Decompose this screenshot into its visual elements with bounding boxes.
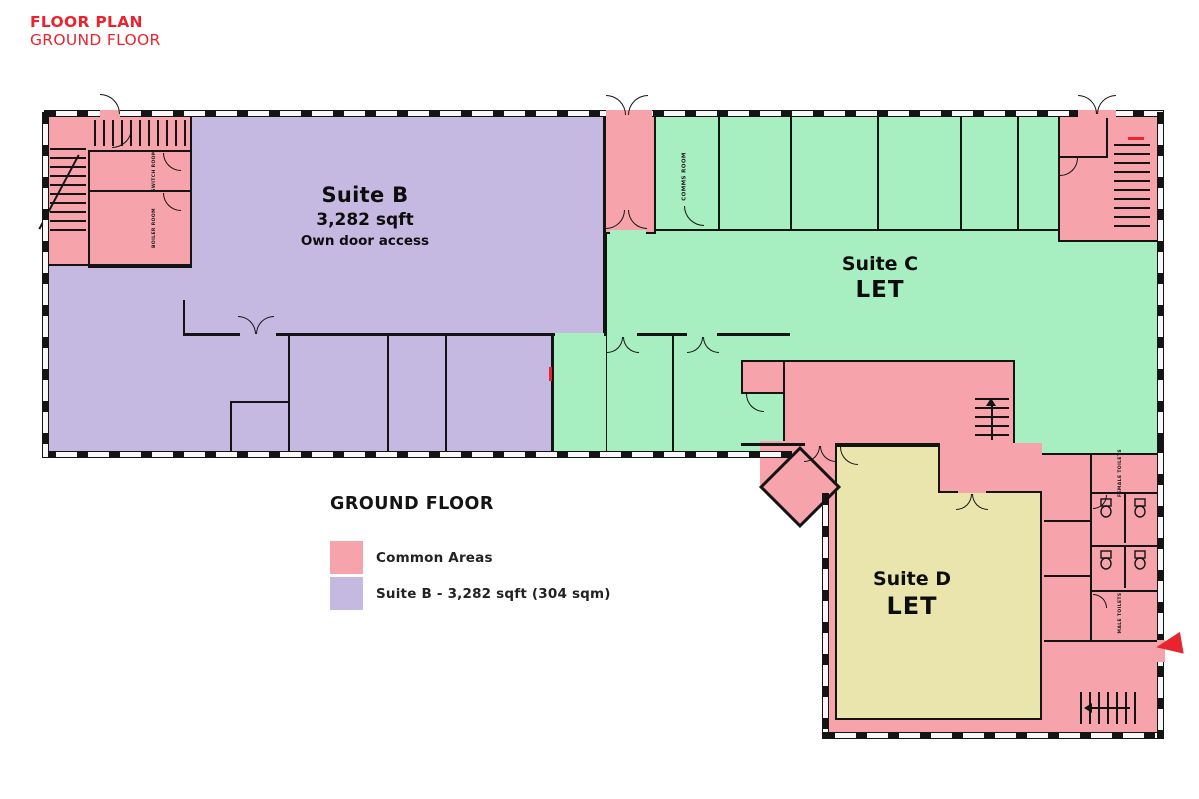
suite-b-swatch — [330, 577, 363, 610]
wall-segment — [1124, 547, 1126, 588]
wall-segment — [672, 336, 674, 454]
stairs-icon — [1114, 144, 1150, 232]
wall-segment — [551, 333, 554, 456]
door-opening — [687, 333, 717, 336]
door-arc-icon — [628, 95, 648, 115]
suite-c-name: Suite C — [795, 253, 965, 275]
window-strip — [1157, 112, 1164, 458]
common-area-core-lobby — [741, 360, 785, 394]
suite-c-label: Suite C LET — [795, 253, 965, 303]
male-toilets-label: MALE TOILETS — [1118, 588, 1134, 638]
door-opening — [607, 333, 637, 336]
suite-d-label: Suite D LET — [827, 568, 997, 620]
wall-segment — [1044, 575, 1090, 577]
door-arc-icon — [606, 95, 626, 115]
wall-segment — [1044, 520, 1090, 522]
window-strip — [44, 110, 1164, 117]
riser-room — [1058, 114, 1108, 158]
page-title: FLOOR PLAN — [30, 13, 161, 31]
wall-segment — [1044, 640, 1162, 642]
toilet-icon — [1132, 550, 1148, 574]
toilet-icon — [1132, 498, 1148, 522]
wall-segment — [183, 300, 185, 335]
wall-segment — [960, 117, 962, 229]
entrance-arrow-icon — [1154, 632, 1183, 658]
page-header: FLOOR PLAN GROUND FLOOR — [30, 13, 161, 49]
stairs-arrow-head — [986, 398, 996, 406]
stairs-icon — [94, 120, 186, 146]
floor-plan-page: { "header": { "line1": "FLOOR PLAN", "li… — [0, 0, 1199, 799]
legend-item-label: Suite B - 3,282 sqft (304 sqm) — [376, 586, 611, 602]
wall-segment — [183, 333, 240, 336]
window-strip — [42, 112, 49, 458]
suite-b-note: Own door access — [230, 233, 500, 249]
switch-room-label: SWITCH ROOM — [152, 149, 168, 193]
wall-segment — [1090, 455, 1092, 640]
legend-title: GROUND FLOOR — [330, 494, 670, 514]
wall-segment — [387, 336, 389, 454]
wall-segment — [718, 117, 720, 229]
legend-item-label: Common Areas — [376, 550, 493, 566]
wall-segment — [654, 229, 1062, 231]
wall-segment — [445, 336, 447, 454]
wall-segment — [1090, 545, 1162, 547]
female-toilets-label: FEMALE TOILETS — [1118, 445, 1134, 501]
toilet-icon — [1098, 550, 1114, 574]
wall-segment — [741, 443, 805, 446]
wall-segment — [1124, 494, 1126, 543]
comms-room-label: COMMS ROOM — [682, 132, 693, 222]
store-room — [230, 401, 290, 454]
stairs-arrow — [1090, 707, 1130, 709]
window-strip — [44, 451, 792, 458]
wall-segment — [790, 117, 792, 229]
red-marker — [1128, 137, 1144, 140]
suite-c-status: LET — [795, 277, 965, 303]
legend-item-common-areas: Common Areas — [330, 541, 493, 574]
suite-d-name: Suite D — [827, 568, 997, 590]
suite-b-name: Suite B — [230, 183, 500, 207]
door-opening — [610, 230, 646, 234]
legend-item-suite-b: Suite B - 3,282 sqft (304 sqm) — [330, 577, 611, 610]
common-area-corridor — [938, 443, 1042, 493]
stairs-icon — [50, 148, 86, 232]
suite-b-area-text: 3,282 sqft — [230, 210, 500, 230]
stairs-arrow-head — [1084, 703, 1092, 713]
red-marker — [549, 367, 552, 381]
wall-segment — [1017, 117, 1019, 229]
common-areas-swatch — [330, 541, 363, 574]
window-strip — [823, 732, 1164, 739]
door-arc-icon — [100, 94, 120, 114]
wall-segment — [276, 333, 555, 336]
boiler-room-label: BOILER ROOM — [152, 200, 168, 256]
door-arc-icon — [1078, 95, 1097, 114]
suite-b-label: Suite B 3,282 sqft Own door access — [230, 183, 500, 249]
legend: GROUND FLOOR Common Areas Suite B - 3,28… — [330, 494, 670, 624]
stairs-arrow — [991, 404, 993, 440]
suite-d-status: LET — [827, 592, 997, 620]
door-opening — [958, 491, 986, 493]
page-subtitle: GROUND FLOOR — [30, 31, 161, 49]
suite-c-annex — [551, 333, 606, 456]
window-strip — [1157, 441, 1164, 739]
wall-segment — [877, 117, 879, 229]
door-arc-icon — [1097, 95, 1116, 114]
